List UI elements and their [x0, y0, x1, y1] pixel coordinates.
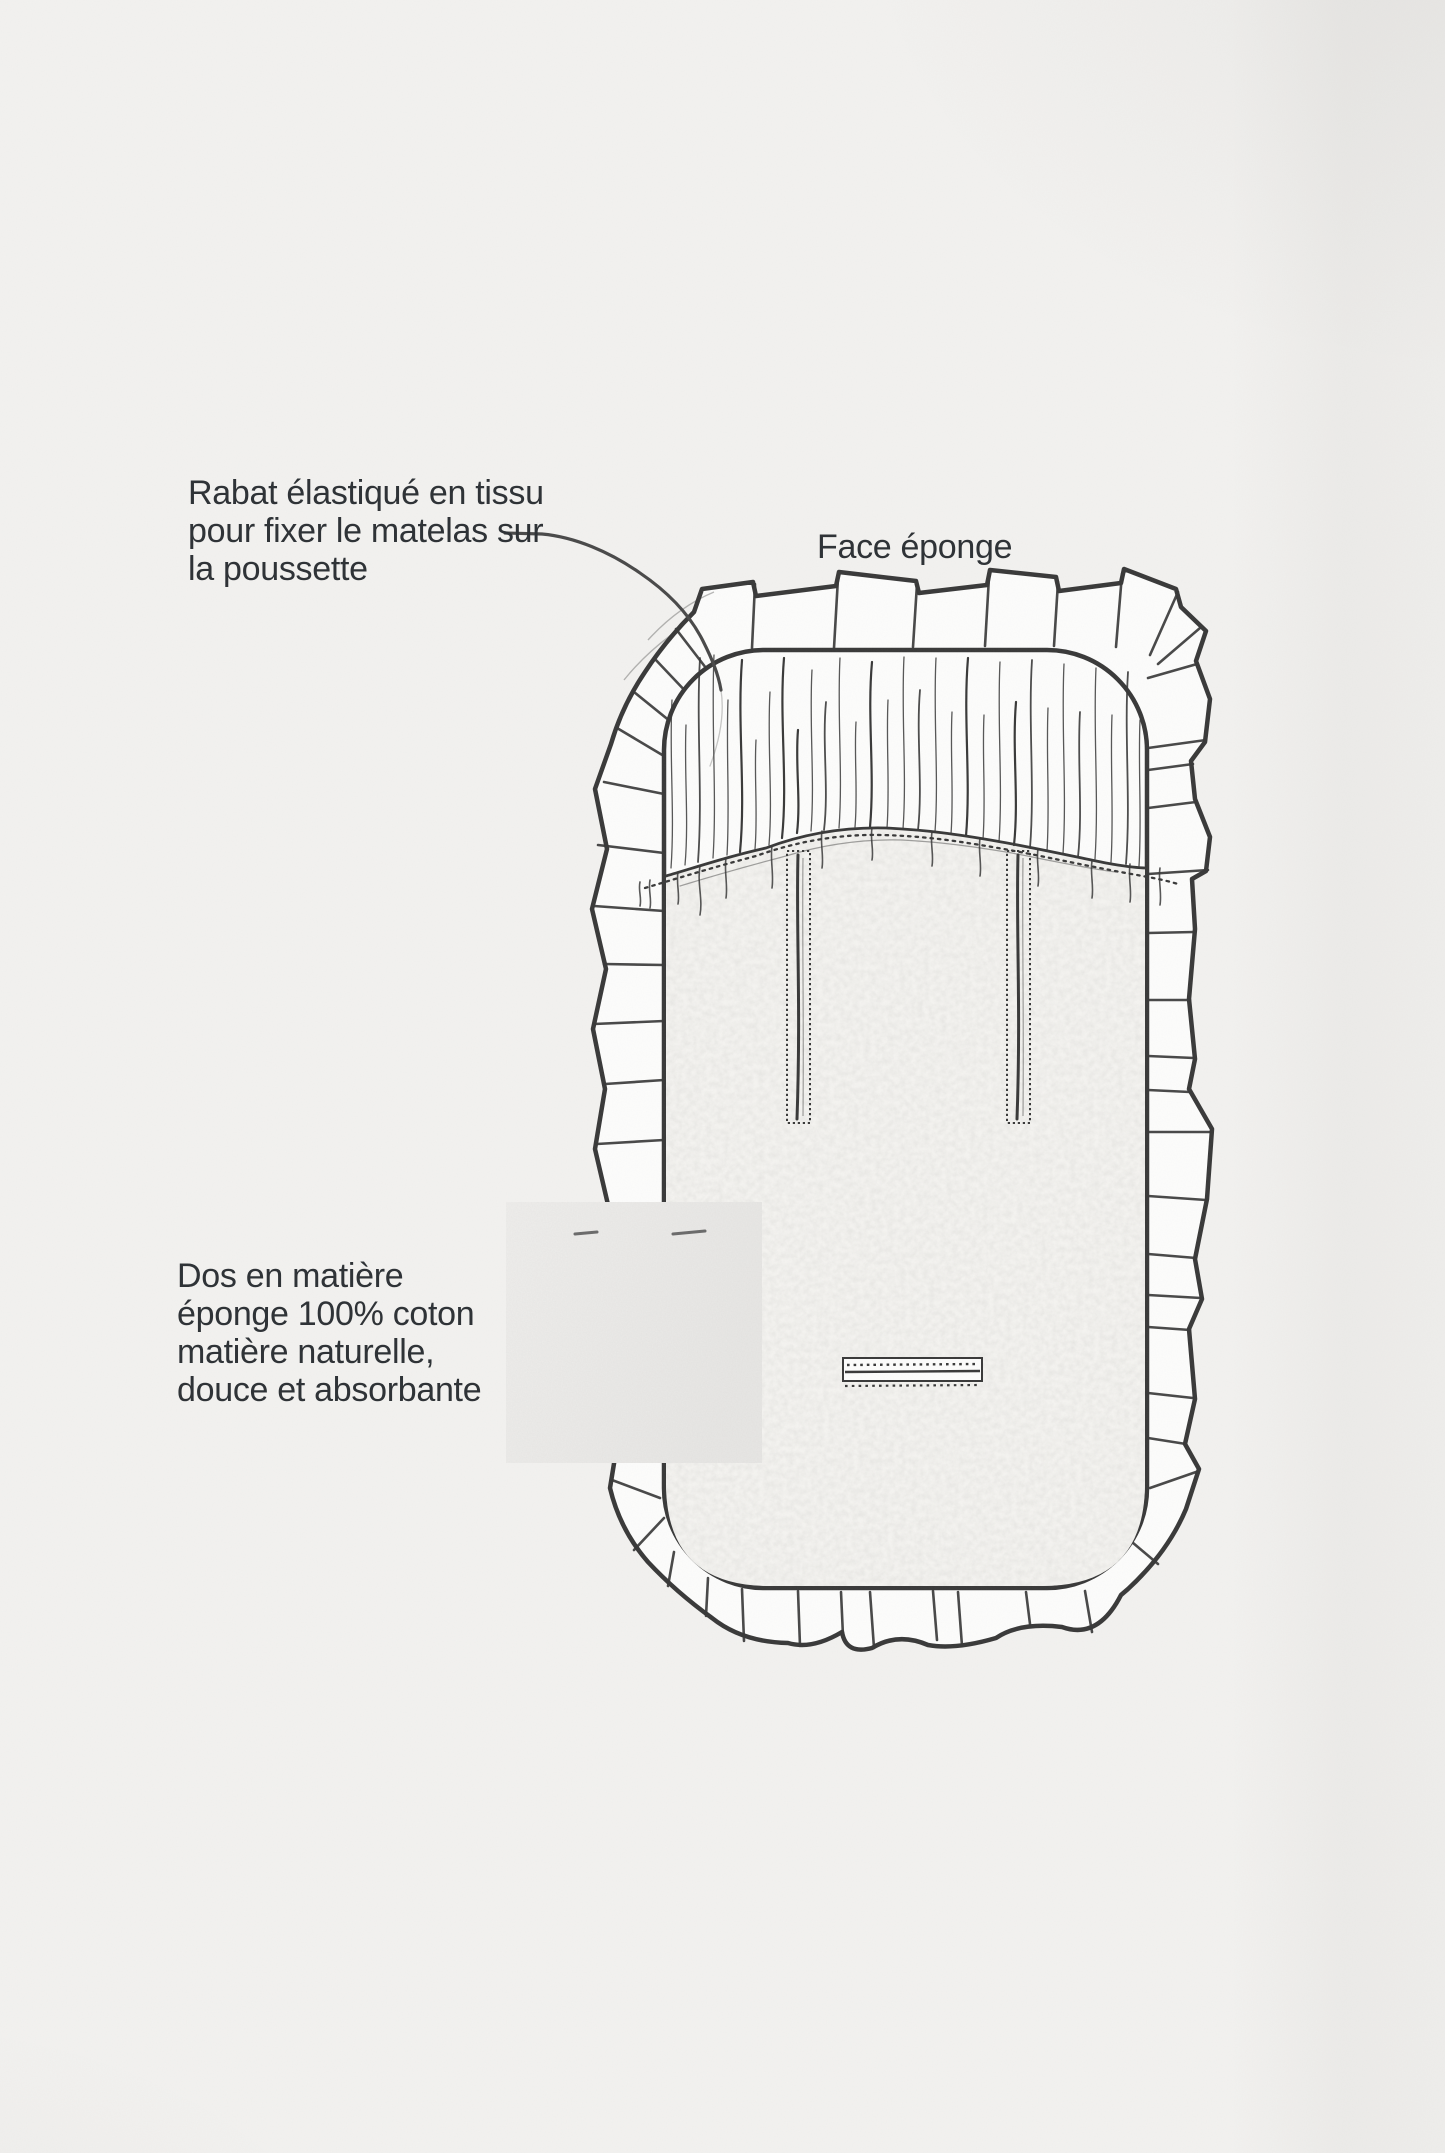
annotation-line: douce et absorbante [177, 1371, 481, 1409]
annotation-line: matière naturelle, [177, 1333, 481, 1371]
annotation-terry-face: Face éponge [817, 528, 1012, 566]
annotation-line: éponge 100% coton [177, 1295, 481, 1333]
annotation-line: Rabat élastiqué en tissu [188, 474, 544, 512]
annotation-line: pour fixer le matelas sur [188, 512, 544, 550]
annotation-terry-back: Dos en matière éponge 100% coton matière… [177, 1257, 481, 1409]
annotation-line: la poussette [188, 550, 544, 588]
stroller-mattress-illustration [0, 0, 1445, 2153]
page-grain [0, 0, 1445, 2153]
annotation-elastic-flap: Rabat élastiqué en tissu pour fixer le m… [188, 474, 544, 588]
annotation-line: Dos en matière [177, 1257, 481, 1295]
